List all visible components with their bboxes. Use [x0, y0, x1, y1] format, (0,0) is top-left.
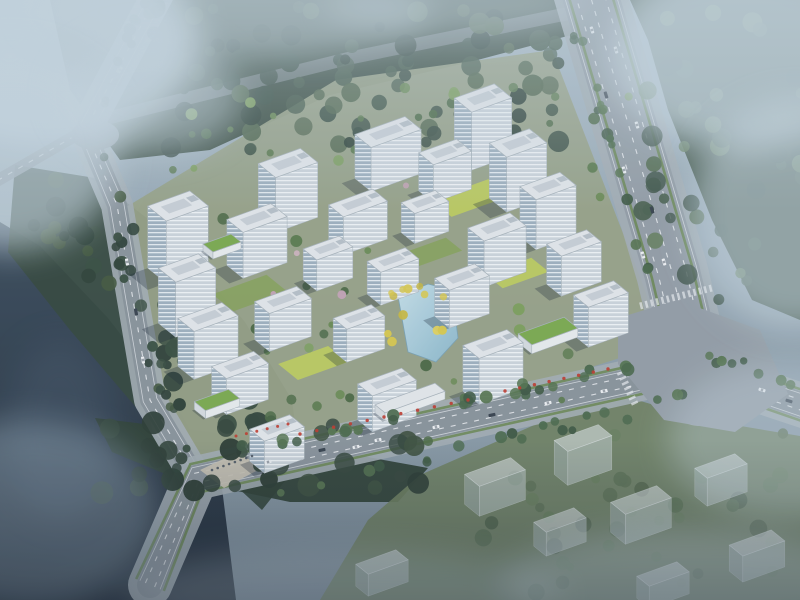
- aerial-render: Aerial rendering of a residential compou…: [0, 0, 800, 600]
- scene-canvas: Aerial rendering of a residential compou…: [0, 0, 800, 600]
- cool-tint: [0, 0, 800, 600]
